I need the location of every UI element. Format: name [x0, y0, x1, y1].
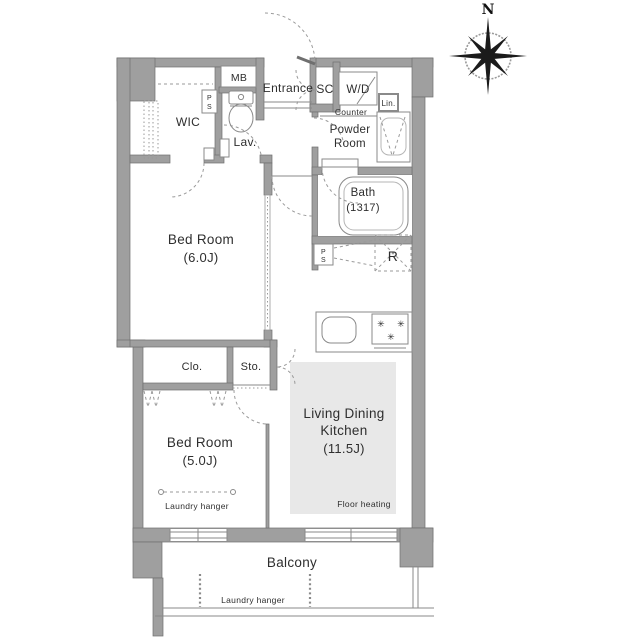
- ldk-door-arc: [272, 176, 312, 216]
- bedroom1-label: Bed Room: [168, 232, 234, 247]
- lav-shelf: [220, 139, 229, 157]
- closet-bifold-marks: [144, 391, 226, 407]
- front-door-arc: [265, 13, 315, 63]
- powder-room-label-1: Powder: [330, 124, 371, 136]
- entrance-step: [264, 102, 312, 108]
- ldk-size-label: (11.5J): [323, 441, 365, 456]
- mb-label: MB: [231, 72, 247, 84]
- bath-label: Bath: [351, 187, 376, 199]
- floor-plan-page: ✳ ✳ ✳: [0, 0, 640, 640]
- wd-label: W/D: [346, 84, 369, 96]
- floor-heating-label: Floor heating: [337, 499, 391, 509]
- bedroom2-size-label: (5.0J): [182, 453, 217, 468]
- compass-north-label: N: [482, 2, 495, 18]
- svg-text:✳: ✳: [397, 319, 405, 329]
- laundry-hanger-bedroom: [159, 490, 236, 495]
- balcony-structure: [155, 567, 434, 616]
- bedroom2-door-arc: [234, 390, 268, 424]
- bath-size-label: (1317): [346, 202, 380, 214]
- sink-icon: [322, 317, 356, 343]
- lav-label: Lav.: [234, 135, 257, 149]
- counter-label: Counter: [335, 107, 367, 117]
- sto-label: Sto.: [241, 361, 262, 373]
- sc-label: SC: [316, 82, 333, 96]
- svg-text:✳: ✳: [377, 319, 385, 329]
- clo-label: Clo.: [182, 361, 203, 373]
- bedroom2-label: Bed Room: [167, 435, 233, 450]
- svg-text:✳: ✳: [387, 332, 395, 342]
- ps-top-p: P: [207, 95, 212, 102]
- floor-plan: ✳ ✳ ✳: [0, 0, 640, 640]
- ldk-label-1: Living Dining: [303, 406, 384, 421]
- refrigerator-label: R: [388, 248, 398, 264]
- balcony-label: Balcony: [267, 555, 317, 570]
- laundry-hanger-balcony-label: Laundry hanger: [221, 595, 285, 605]
- ps-bottom-s: S: [321, 257, 326, 264]
- wic-label: WIC: [176, 115, 200, 129]
- wic-door-arc: [170, 163, 204, 197]
- bath-door-leaf: [322, 159, 358, 167]
- kitchen-counter: ✳ ✳ ✳: [316, 312, 412, 352]
- laundry-hanger-bedroom-label: Laundry hanger: [165, 501, 229, 511]
- bedroom1-size-label: (6.0J): [183, 250, 218, 265]
- lav-cabinet: [204, 148, 214, 160]
- ldk-label-2: Kitchen: [320, 423, 367, 438]
- stove-icon: ✳ ✳ ✳: [372, 314, 408, 344]
- powder-room-label-2: Room: [334, 138, 366, 150]
- lin-label: Lin.: [381, 99, 395, 108]
- compass-rose-icon: N: [449, 2, 527, 95]
- ps-top-s: S: [207, 104, 212, 111]
- ps-bottom-p: P: [321, 249, 326, 256]
- floor-heating-zone: [290, 362, 396, 514]
- wic-shelf: [144, 101, 158, 158]
- washbasin-icon: [377, 112, 410, 162]
- bedroom1-sliding-door: [265, 195, 270, 330]
- entrance-label: Entrance: [263, 81, 313, 95]
